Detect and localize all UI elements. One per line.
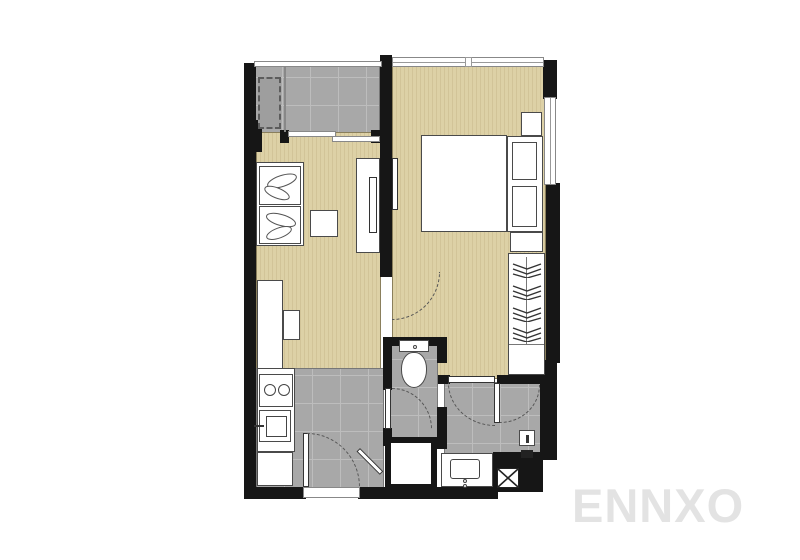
cabinet-shelf [283, 310, 300, 340]
sofa-cushion-top [259, 166, 301, 205]
balcony-railing [254, 61, 382, 67]
bathroom-right-wall-upper [437, 337, 447, 363]
bedroom-tv-icon [392, 158, 398, 210]
water-heater-icon [519, 430, 535, 446]
leaf-cushion-icon [260, 167, 302, 206]
entrance-threshold [303, 487, 360, 498]
watermark: ENNXO [572, 482, 744, 529]
balcony-divider [284, 66, 286, 132]
bedroom-side-window [544, 97, 556, 185]
bed [421, 135, 507, 232]
refrigerator [257, 452, 293, 486]
stove-burner-icon [264, 384, 276, 396]
partition-wall [380, 55, 392, 277]
bathroom-left-wall [383, 337, 392, 390]
wardrobe [508, 253, 545, 375]
floor-plan: ENNXO [0, 0, 800, 560]
bathroom-right-wall-lower [437, 407, 447, 449]
wall-cabinet [257, 280, 283, 369]
bedroom-window [392, 57, 544, 67]
right-wall-top [543, 60, 557, 99]
hall-top-wall [497, 375, 543, 384]
nightstand-bottom [510, 232, 543, 252]
bathroom-vanity [441, 453, 493, 487]
stove [259, 374, 293, 407]
washing-machine-icon [258, 77, 281, 129]
kitchen-sink [259, 410, 291, 442]
toilet-bowl [401, 352, 427, 388]
vanity-sink-icon [450, 459, 480, 479]
floor-drain-icon [497, 468, 519, 488]
balcony-sliding-door [288, 131, 336, 137]
coffee-table [310, 210, 338, 237]
clothes-hanger-icon [512, 284, 542, 300]
right-wall-mid [546, 183, 560, 363]
faucet-icon [254, 425, 264, 427]
clothes-hanger-icon [512, 262, 542, 278]
pillow-icon [512, 186, 537, 227]
bedroom-door-leaf [448, 376, 495, 383]
water-heater-base [521, 450, 533, 458]
shower-stall [385, 437, 437, 490]
toilet-tank [399, 340, 429, 352]
tv-icon [369, 177, 377, 233]
bottom-wall-left [244, 487, 306, 499]
clothes-hanger-icon [512, 326, 542, 342]
sofa-cushion-bottom [259, 206, 301, 244]
nightstand-top [521, 112, 542, 136]
balcony-sliding-door-2 [332, 136, 380, 142]
stove-burner-icon [278, 384, 290, 396]
clothes-hanger-icon [512, 306, 542, 322]
pillow-icon [512, 142, 537, 180]
leaf-cushion-icon [260, 207, 302, 245]
bathroom-door-leaf [385, 388, 391, 429]
